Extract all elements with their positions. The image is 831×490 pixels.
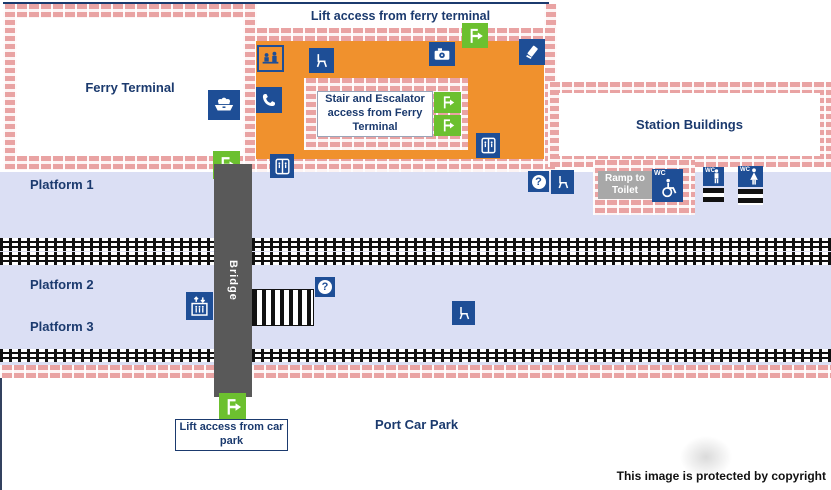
waiting-room-icon (309, 48, 334, 73)
lift-icon (476, 133, 500, 158)
ramp-to-toilet-block: Ramp to Toilet WC (593, 160, 695, 215)
telephone-icon (256, 87, 282, 113)
ferry-terminal-building: Ferry Terminal (3, 4, 257, 170)
ticket-machine-icon (519, 39, 545, 65)
railway-track-3 (0, 349, 831, 362)
ticket-office-icon (257, 45, 284, 72)
ferry-terminal-label: Ferry Terminal (85, 80, 174, 95)
station-buildings: Station Buildings (548, 82, 831, 167)
brick-column (544, 4, 557, 28)
waiting-room-icon (452, 301, 475, 325)
toilet-men-icon: WC (703, 167, 724, 186)
lift-car-park-caption-box: Lift access from car park (175, 419, 288, 451)
lift-access-icon (434, 115, 461, 136)
station-buildings-label: Station Buildings (636, 117, 743, 132)
cctv-icon (429, 42, 455, 66)
footbridge: Bridge (214, 164, 252, 397)
stairs-icon (252, 289, 314, 326)
stairs-icon (738, 189, 763, 205)
lift-car-park-caption: Lift access from car park (176, 421, 287, 449)
lift-ferry-caption-box: Lift access from ferry terminal (257, 4, 544, 28)
platform-3-label: Platform 3 (30, 319, 94, 334)
waiting-room-icon (551, 170, 574, 194)
lift-access-icon (434, 92, 461, 113)
ferry-icon (208, 90, 240, 120)
railway-track-1 (0, 238, 831, 251)
platform-lift-icon (186, 292, 213, 320)
lift-access-icon (462, 23, 488, 48)
copyright-notice: This image is protected by copyright (560, 469, 826, 483)
bridge-label: Bridge (227, 260, 239, 301)
lift-ferry-caption: Lift access from ferry terminal (311, 9, 490, 23)
help-point-icon: ? (528, 171, 549, 192)
stairs-icon (703, 188, 724, 202)
boundary-wall (0, 365, 831, 378)
map-edge-line (0, 378, 2, 490)
station-map: Ferry Terminal Lift access from ferry te… (0, 0, 831, 490)
stairwell-frame: Stair and Escalator access from Ferry Te… (304, 78, 468, 150)
port-car-park-label: Port Car Park (375, 417, 458, 432)
platform-1-label: Platform 1 (30, 177, 94, 192)
platform-2-label: Platform 2 (30, 277, 94, 292)
accessible-toilet-icon: WC (652, 169, 683, 202)
help-point-icon: ? (315, 277, 335, 297)
toilet-women-icon: WC (738, 166, 763, 187)
railway-track-2 (0, 252, 831, 265)
lift-icon (270, 154, 294, 178)
lift-access-icon (219, 393, 246, 420)
ramp-to-toilet-label: Ramp to Toilet (598, 173, 652, 198)
stair-escalator-caption: Stair and Escalator access from Ferry Te… (318, 93, 432, 134)
